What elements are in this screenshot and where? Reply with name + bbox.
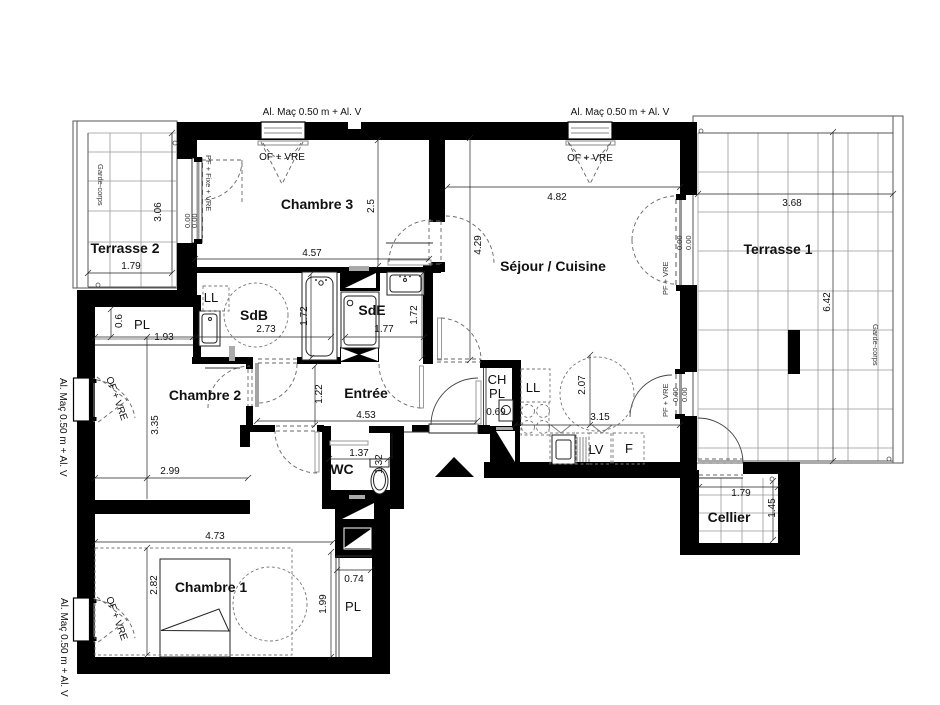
svg-text:0.69: 0.69: [486, 407, 506, 418]
svg-text:Al. Maç 0.50 m + Al. V: Al. Maç 0.50 m + Al. V: [571, 107, 670, 118]
svg-text:1.99: 1.99: [318, 594, 329, 614]
svg-text:Chambre 3: Chambre 3: [281, 196, 354, 212]
svg-text:4.57: 4.57: [302, 248, 322, 259]
svg-text:PL: PL: [134, 317, 150, 332]
svg-text:Cellier: Cellier: [708, 509, 751, 525]
svg-text:LL: LL: [526, 380, 540, 395]
svg-text:1.72: 1.72: [299, 306, 310, 326]
svg-text:PF + Fixe + VRE: PF + Fixe + VRE: [204, 155, 213, 211]
svg-text:CH: CH: [488, 372, 507, 387]
svg-text:Entrée: Entrée: [344, 385, 388, 401]
svg-text:4.73: 4.73: [205, 531, 225, 542]
svg-text:2.07: 2.07: [577, 375, 588, 395]
svg-text:OF + VRE: OF + VRE: [567, 153, 613, 164]
svg-text:SdB: SdB: [240, 307, 268, 323]
svg-text:3.06: 3.06: [153, 202, 164, 222]
svg-text:2.5: 2.5: [366, 199, 377, 213]
svg-text:3.68: 3.68: [782, 198, 802, 209]
svg-text:PL: PL: [345, 599, 361, 614]
svg-text:LV: LV: [589, 442, 604, 457]
svg-text:PL: PL: [489, 386, 505, 401]
svg-text:6.42: 6.42: [822, 292, 833, 312]
svg-text:4.82: 4.82: [547, 192, 567, 203]
svg-text:0.00: 0.00: [684, 235, 693, 250]
svg-text:2.73: 2.73: [256, 324, 276, 335]
svg-text:Terrasse 1: Terrasse 1: [743, 241, 812, 257]
svg-text:Al. Maç 0.50 m + Al. V: Al. Maç 0.50 m + Al. V: [58, 598, 69, 697]
svg-text:Chambre 2: Chambre 2: [169, 387, 242, 403]
svg-text:1.32: 1.32: [374, 454, 385, 474]
svg-text:1.93: 1.93: [154, 332, 174, 343]
svg-text:1.37: 1.37: [349, 448, 369, 459]
svg-text:0.00: 0.00: [675, 235, 684, 250]
svg-text:Al. Maç 0.50 m + Al. V: Al. Maç 0.50 m + Al. V: [263, 107, 362, 118]
svg-text:1.79: 1.79: [121, 261, 141, 272]
svg-text:4.29: 4.29: [473, 235, 484, 255]
svg-text:0.00: 0.00: [190, 213, 199, 228]
svg-text:F: F: [625, 441, 633, 456]
svg-text:WC: WC: [330, 461, 353, 477]
svg-text:Al. Maç 0.50 m + Al. V: Al. Maç 0.50 m + Al. V: [57, 378, 68, 477]
svg-text:4.53: 4.53: [356, 410, 376, 421]
svg-text:1.22: 1.22: [314, 384, 325, 404]
svg-text:Garde-corps: Garde-corps: [871, 324, 880, 366]
svg-text:PF + VRE: PF + VRE: [661, 383, 670, 417]
svg-text:1.77: 1.77: [374, 324, 394, 335]
svg-text:Garde-corps: Garde-corps: [96, 164, 105, 206]
svg-text:1.72: 1.72: [409, 305, 420, 325]
svg-text:3.35: 3.35: [150, 415, 161, 435]
svg-text:0.00: 0.00: [671, 387, 680, 402]
svg-text:2.99: 2.99: [160, 466, 180, 477]
svg-text:2.82: 2.82: [149, 575, 160, 595]
svg-text:1.45: 1.45: [767, 498, 778, 518]
svg-text:0.00: 0.00: [680, 387, 689, 402]
svg-text:1.79: 1.79: [731, 488, 751, 499]
svg-text:PF + VRE: PF + VRE: [661, 261, 670, 295]
svg-text:LL: LL: [204, 290, 218, 305]
svg-text:3.15: 3.15: [590, 412, 610, 423]
svg-text:OF + VRE: OF + VRE: [259, 152, 305, 163]
svg-text:0.6: 0.6: [114, 314, 125, 328]
svg-text:Chambre 1: Chambre 1: [175, 579, 248, 595]
svg-text:Séjour / Cuisine: Séjour / Cuisine: [500, 258, 606, 274]
svg-text:Terrasse 2: Terrasse 2: [90, 240, 159, 256]
svg-text:0.74: 0.74: [344, 574, 364, 585]
svg-text:SdE: SdE: [358, 302, 385, 318]
